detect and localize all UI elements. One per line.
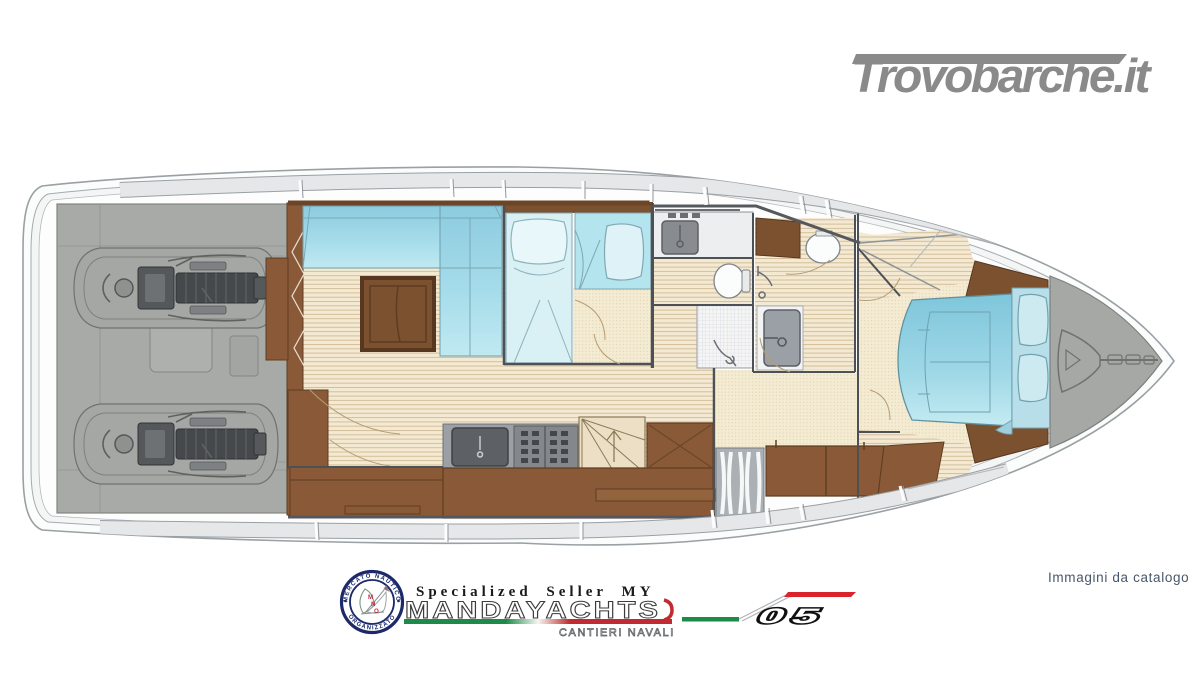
svg-text:M: M	[368, 594, 373, 601]
svg-text:O: O	[374, 608, 379, 615]
svg-text:Trovobarche.it: Trovobarche.it	[851, 49, 1153, 102]
svg-text:N: N	[371, 601, 376, 608]
svg-text:Immagini da catalogo: Immagini da catalogo	[1048, 570, 1189, 585]
svg-text:05: 05	[752, 604, 834, 627]
svg-text:CANTIERI NAVALI: CANTIERI NAVALI	[559, 627, 675, 639]
